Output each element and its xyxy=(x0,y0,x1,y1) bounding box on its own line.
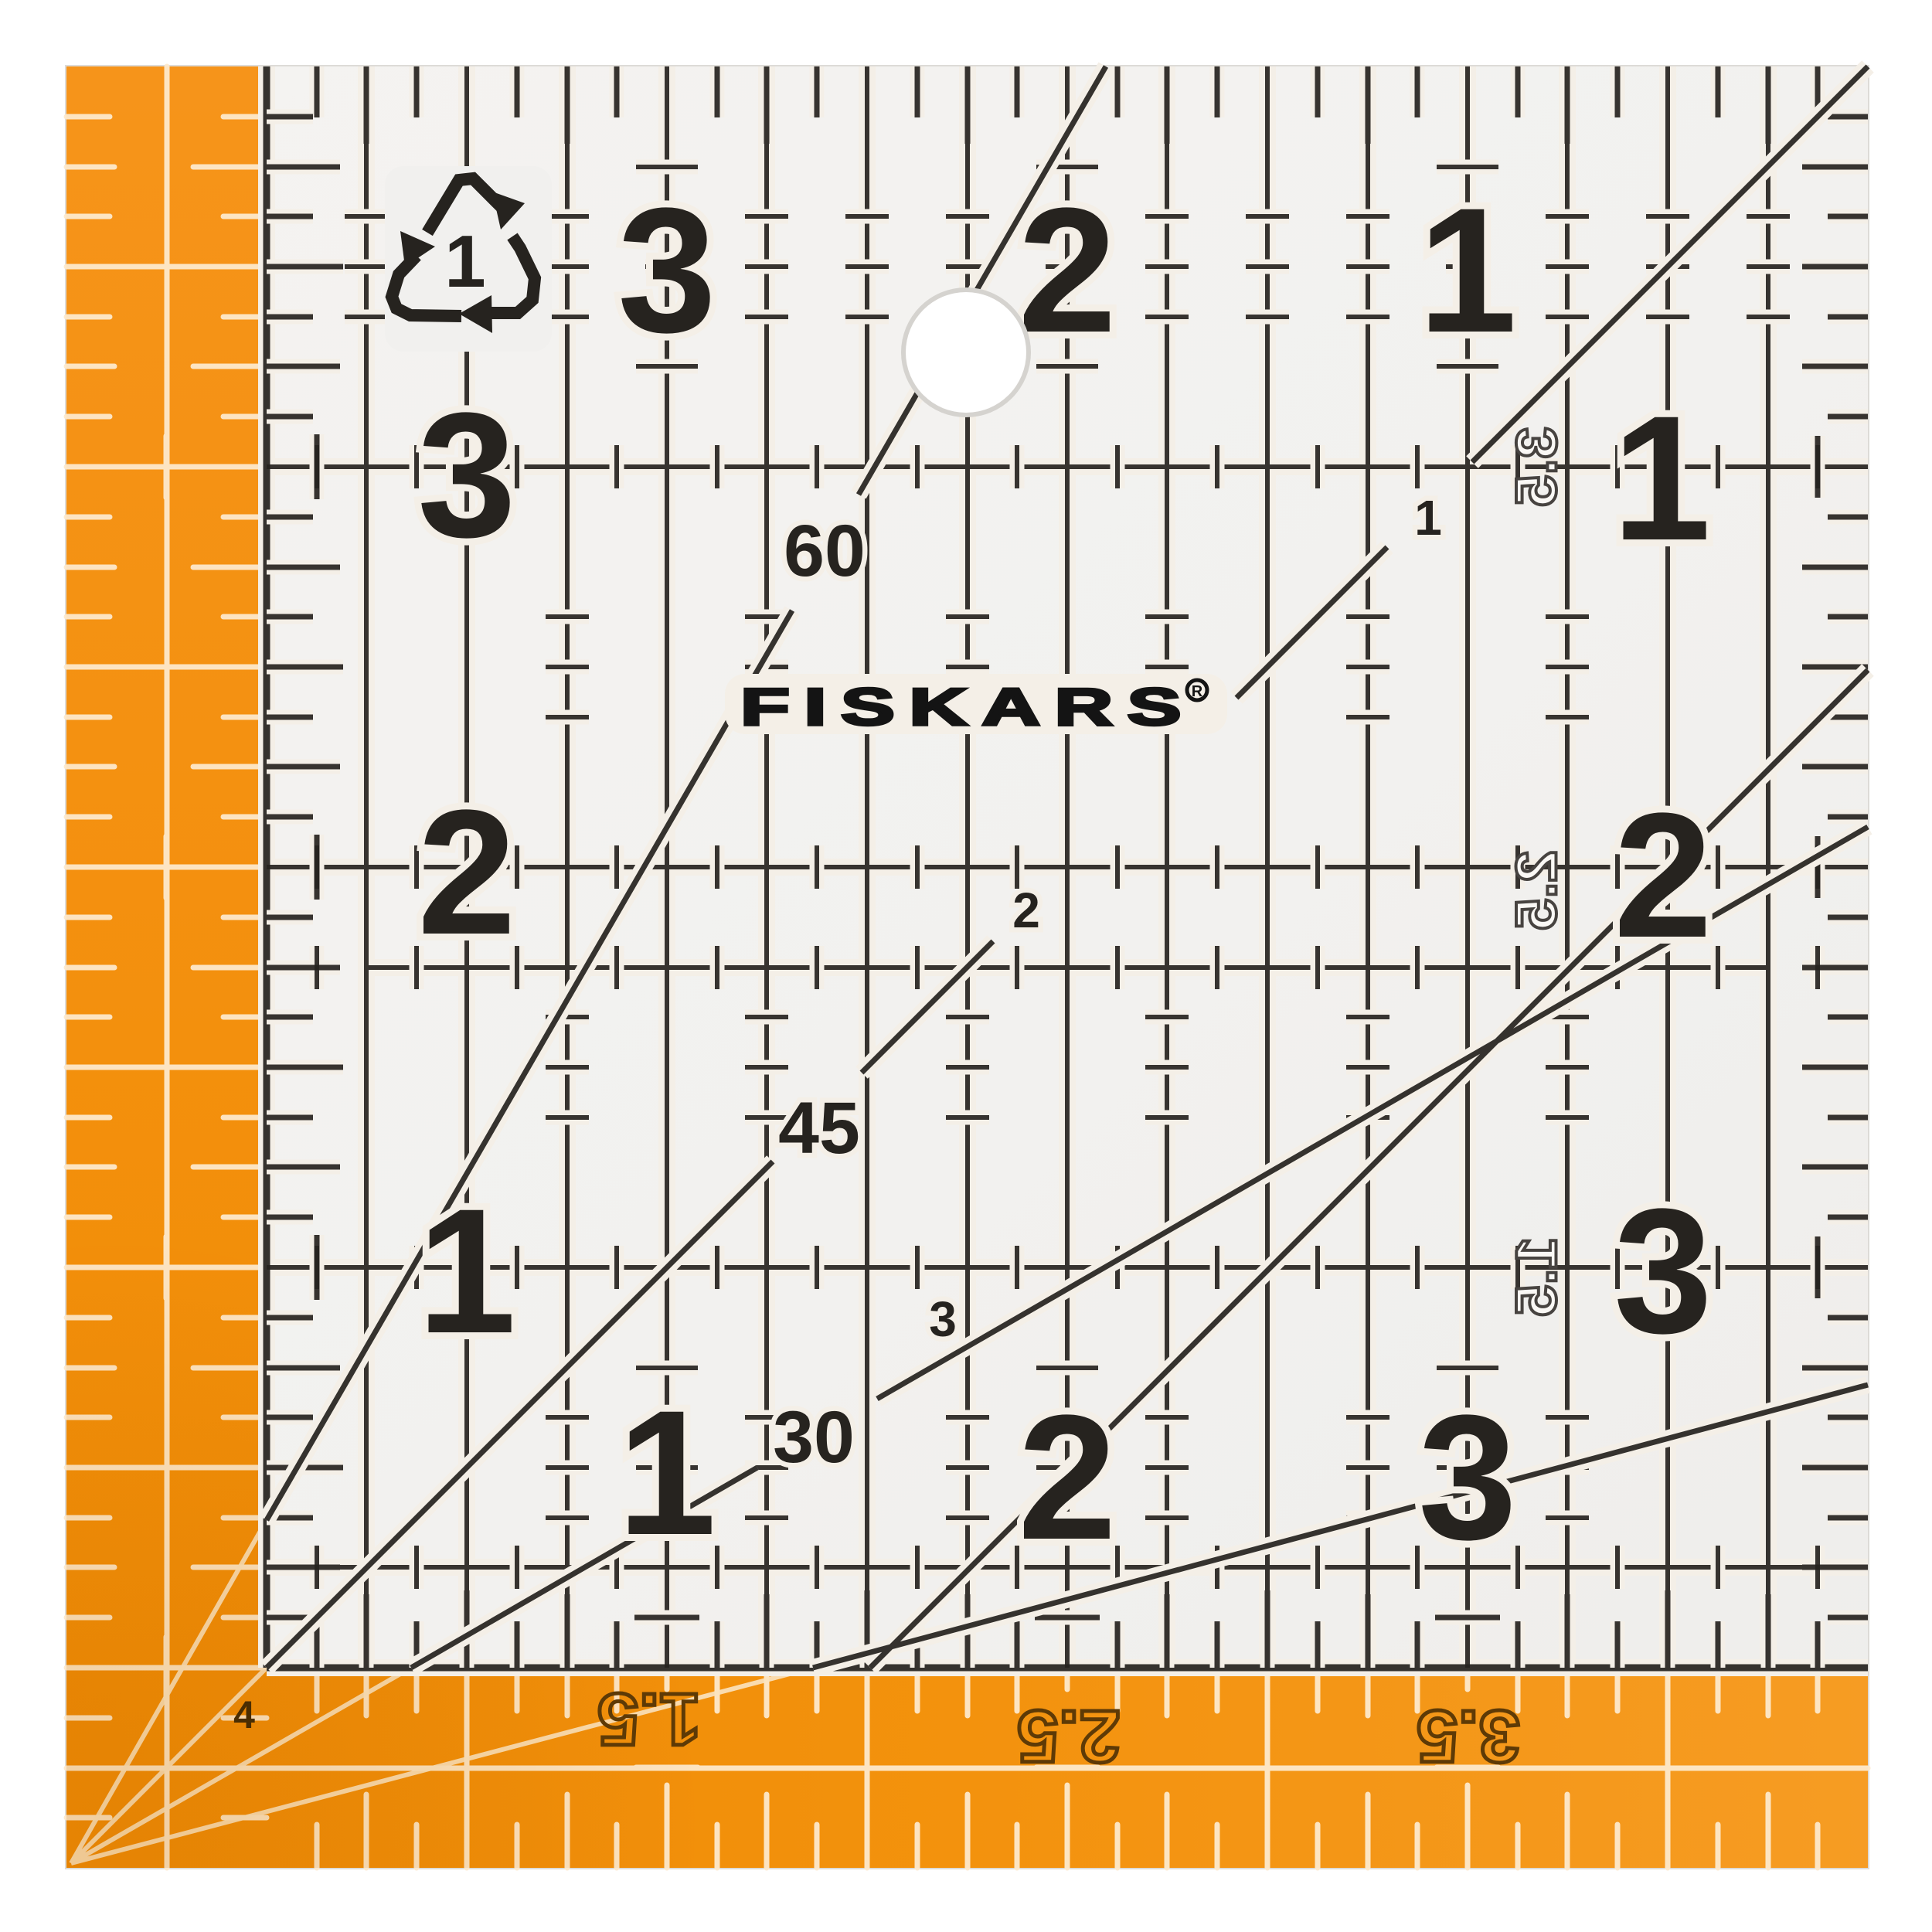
svg-text:2.5: 2.5 xyxy=(1505,851,1569,930)
svg-text:45: 45 xyxy=(778,1087,860,1169)
svg-text:3: 3 xyxy=(417,376,516,574)
svg-text:1.5: 1.5 xyxy=(1505,1237,1569,1317)
svg-text:1.5: 1.5 xyxy=(597,1678,700,1760)
svg-text:30: 30 xyxy=(773,1396,855,1478)
svg-text:3.5: 3.5 xyxy=(1417,1695,1519,1777)
svg-text:1: 1 xyxy=(1418,171,1517,369)
svg-text:FISKARS: FISKARS xyxy=(740,677,1196,736)
svg-text:3.5: 3.5 xyxy=(1505,427,1569,507)
svg-text:2: 2 xyxy=(1614,776,1713,975)
svg-text:4: 4 xyxy=(233,1693,255,1736)
svg-text:1: 1 xyxy=(617,1373,716,1572)
svg-text:1: 1 xyxy=(1612,379,1711,577)
svg-text:2: 2 xyxy=(1018,171,1117,369)
svg-text:2: 2 xyxy=(1012,883,1040,938)
svg-text:R: R xyxy=(1192,683,1203,700)
svg-text:3: 3 xyxy=(929,1291,957,1347)
svg-text:1: 1 xyxy=(1414,490,1442,546)
svg-text:60: 60 xyxy=(784,510,866,592)
svg-text:1: 1 xyxy=(444,220,485,303)
svg-text:2: 2 xyxy=(1018,1378,1117,1577)
svg-text:2: 2 xyxy=(417,773,516,971)
svg-text:3: 3 xyxy=(617,171,716,369)
svg-text:3: 3 xyxy=(1418,1378,1517,1577)
svg-text:3: 3 xyxy=(1614,1172,1713,1370)
svg-text:1: 1 xyxy=(417,1172,516,1370)
svg-text:2.5: 2.5 xyxy=(1017,1695,1120,1777)
